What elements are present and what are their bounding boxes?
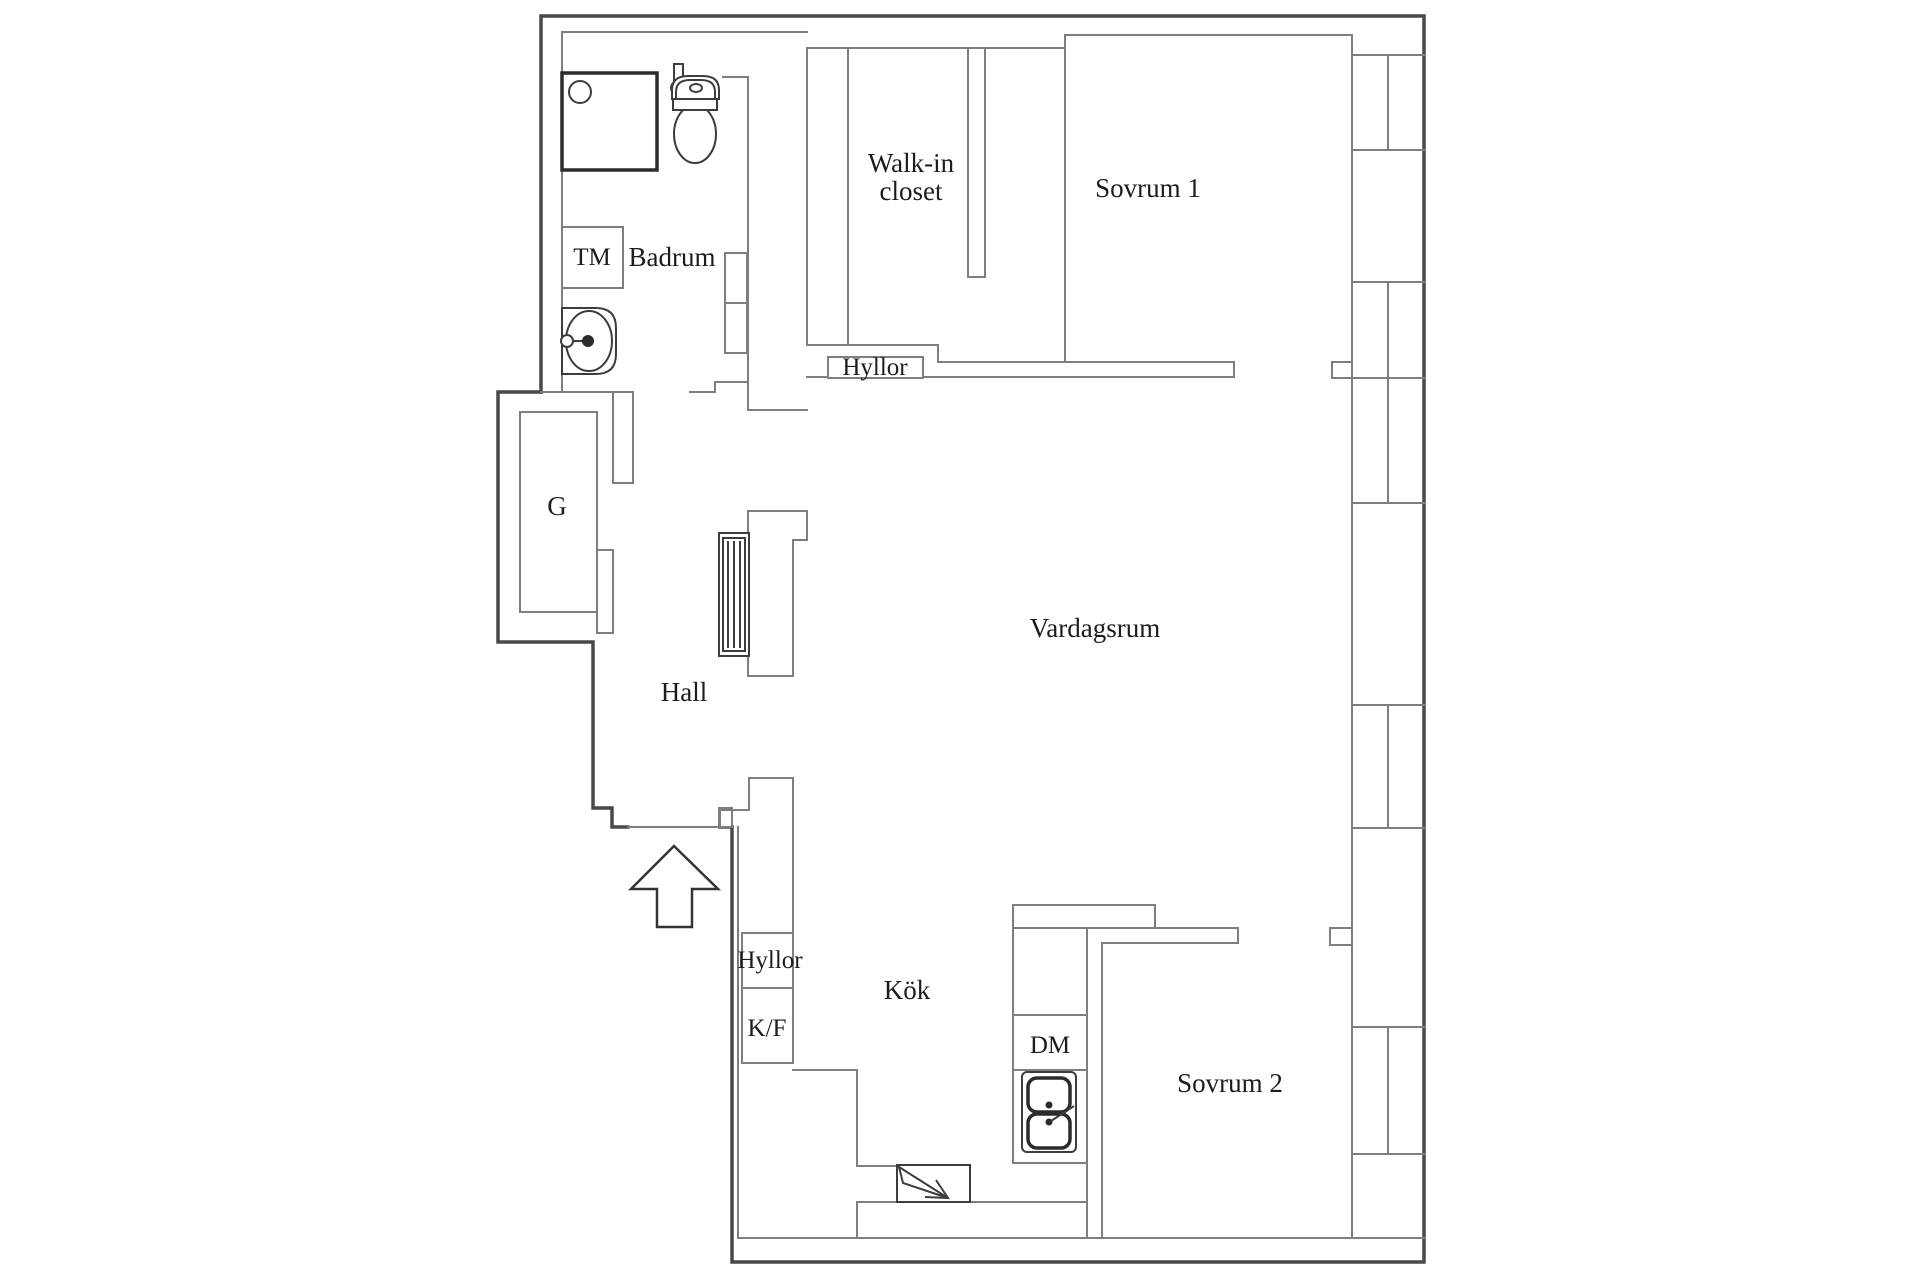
kitchen-and-sovrum2-walls <box>720 778 1424 1238</box>
stove-icon <box>897 1165 970 1202</box>
kitchen-sink-icon <box>1022 1072 1076 1152</box>
garderob-pillar <box>613 392 633 483</box>
closet-partition-wall <box>968 48 985 277</box>
washbasin-tap-knob <box>582 335 594 347</box>
kitchen-counter-bottom <box>857 1202 1087 1238</box>
bathroom-fixtures <box>561 64 719 374</box>
toilet-hinge <box>673 99 717 110</box>
entrance-arrow-icon <box>631 846 718 927</box>
label-sovrum-1: Sovrum 1 <box>1095 173 1201 203</box>
sovrum2-door-jamb <box>1330 928 1352 945</box>
interior-walls <box>520 32 1424 1238</box>
label-badrum: Badrum <box>629 242 716 272</box>
label-garderob: G <box>547 491 567 521</box>
bathroom-shelf-upper <box>725 253 747 303</box>
closet-and-sovrum1-walls <box>807 35 1352 377</box>
shower-drain <box>569 81 591 103</box>
washbasin-icon <box>561 308 616 374</box>
label-sovrum-2: Sovrum 2 <box>1177 1068 1283 1098</box>
label-hyllor-closet: Hyllor <box>842 354 908 381</box>
label-walk-in-closet-line2: closet <box>880 176 943 206</box>
label-walk-in-closet-line1: Walk-in <box>868 148 955 178</box>
outer-walls <box>498 16 1424 1262</box>
bathroom-shelf-lower <box>725 303 747 353</box>
radiator-icon <box>719 533 749 656</box>
chimney-shaft-icon <box>748 511 807 676</box>
label-kf: K/F <box>748 1015 787 1042</box>
sovrum1-door-jamb <box>1332 362 1352 378</box>
label-kok: Kök <box>884 975 931 1005</box>
kitchen-fixtures <box>897 1072 1076 1202</box>
label-dm: DM <box>1030 1032 1070 1059</box>
sink-tap-dot-1 <box>1046 1102 1053 1109</box>
washbasin-tap-base <box>561 335 573 347</box>
toilet-icon <box>672 76 719 163</box>
label-hyllor-kitchen: Hyllor <box>737 947 803 974</box>
window-wall-frame <box>1332 35 1424 1238</box>
room-labels: TM Badrum Walk-in closet Sovrum 1 Hyllor… <box>547 148 1283 1098</box>
garderob-stub <box>597 550 613 633</box>
toilet-bowl <box>674 105 716 163</box>
floorplan-drawing: TM Badrum Walk-in closet Sovrum 1 Hyllor… <box>0 0 1920 1280</box>
label-tm: TM <box>573 244 611 271</box>
label-vardagsrum: Vardagsrum <box>1030 613 1160 643</box>
floorplan-page: TM Badrum Walk-in closet Sovrum 1 Hyllor… <box>0 0 1920 1280</box>
cabinets <box>562 227 1087 1238</box>
label-hall: Hall <box>661 677 708 707</box>
